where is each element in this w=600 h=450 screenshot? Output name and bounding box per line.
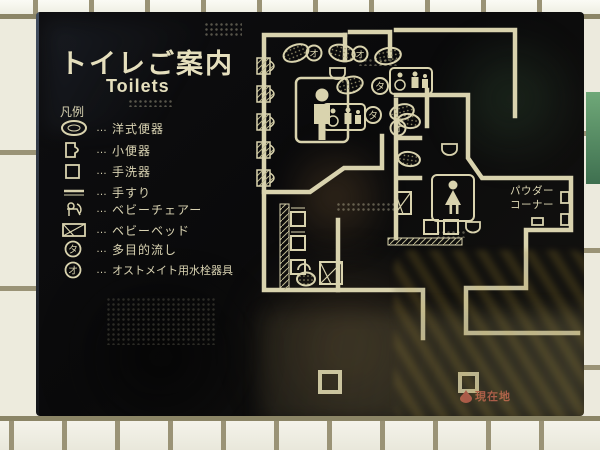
wash-basin-icon: [58, 162, 94, 180]
toilet-guide-sign: トイレご案内 Toilets 凡例 … 洋式便器 … 小便器 … 手洗器: [36, 12, 584, 416]
tile-column-right: [584, 19, 600, 416]
braille-dots: [204, 22, 242, 36]
green-sign-edge: [586, 92, 600, 184]
ostomate-fixture-icon: オ: [58, 261, 94, 279]
station-wall-photo: トイレご案内 Toilets 凡例 … 洋式便器 … 小便器 … 手洗器: [0, 0, 600, 450]
braille-dots: [336, 202, 398, 212]
braille-dots: [106, 297, 216, 345]
legend-item-baby-bed: … ベビーベッド: [58, 220, 190, 240]
sign-glass-edge: [36, 12, 39, 416]
braille-dots: [358, 58, 398, 66]
svg-text:タ: タ: [375, 81, 385, 93]
baby-chair-icon: [58, 200, 94, 218]
tile-column-left: [0, 19, 36, 416]
legend-item-baby-chair: … ベビーチェアー: [58, 199, 202, 219]
svg-text:オ: オ: [309, 49, 319, 60]
legend-item-wash-basin: … 手洗器: [58, 161, 151, 181]
pillar: [320, 372, 340, 392]
multipurpose-sink-icon: タ タ: [365, 78, 388, 123]
svg-text:タ: タ: [368, 110, 378, 122]
current-location-text: 現在地: [475, 388, 511, 404]
legend-item-urinal: … 小便器: [58, 140, 151, 160]
legend-item-ostomate: オ … オストメイト用水栓器具: [58, 260, 233, 280]
legend-item-western-toilet: … 洋式便器: [58, 118, 164, 138]
sign-subtitle: Toilets: [106, 76, 170, 97]
svg-text:オ: オ: [393, 124, 403, 135]
svg-text:タ: タ: [68, 244, 78, 256]
floor-map: タ タ オ オ オ: [246, 22, 582, 414]
legend-item-multipurpose-sink: タ … 多目的流し: [58, 239, 177, 259]
location-pin-icon: [460, 390, 472, 403]
current-location-marker: 現在地: [460, 388, 511, 404]
hatched-wall: [280, 204, 289, 290]
western-toilet-icon: [58, 119, 94, 137]
baby-bed-icon: [58, 221, 94, 239]
powder-corner-label: パウダー コーナー: [510, 184, 574, 212]
svg-text:オ: オ: [68, 265, 78, 277]
braille-dots: [436, 230, 466, 238]
hatched-wall: [388, 238, 462, 245]
tile-row-bottom: [0, 421, 600, 450]
braille-dots: [128, 99, 172, 107]
women-pictogram: [432, 175, 474, 221]
urinal-icon: [58, 141, 94, 159]
multipurpose-sink-icon: タ: [58, 240, 94, 258]
